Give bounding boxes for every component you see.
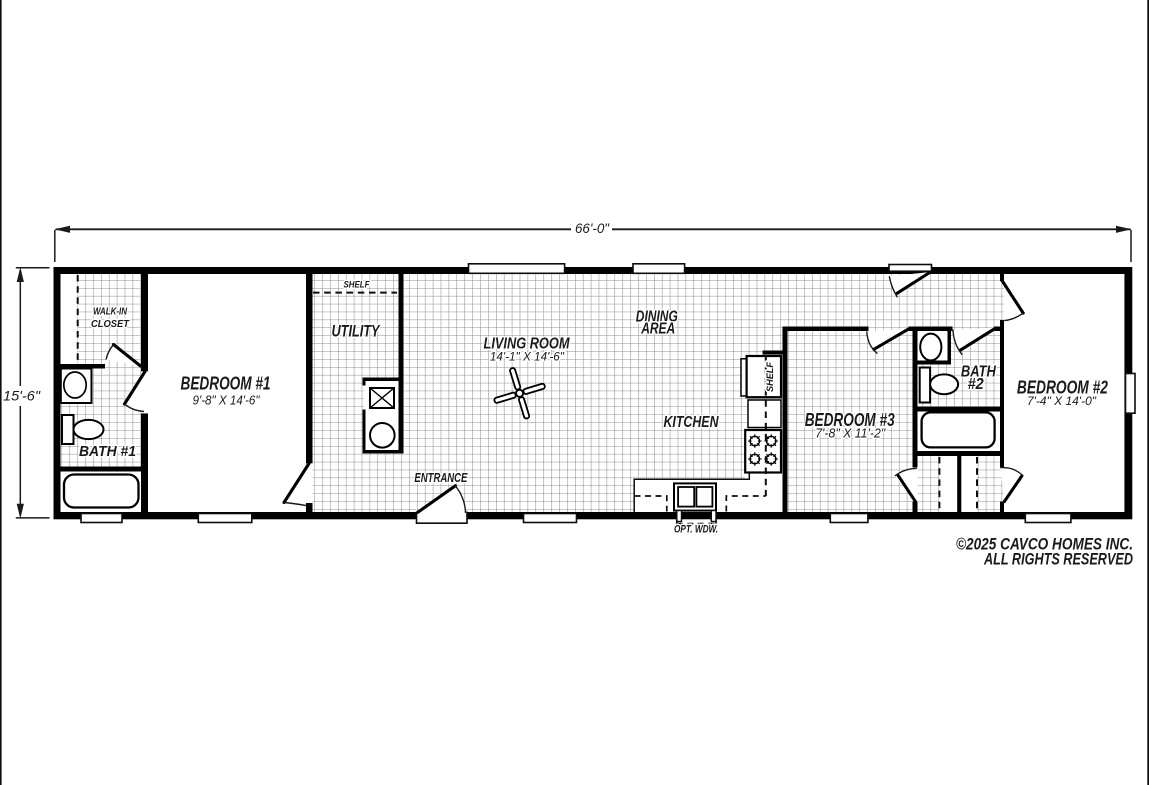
svg-text:ENTRANCE: ENTRANCE bbox=[414, 470, 467, 485]
svg-text:BATH #1: BATH #1 bbox=[79, 444, 136, 460]
svg-text:UTILITY: UTILITY bbox=[332, 322, 381, 341]
svg-text:OPT. WDW.: OPT. WDW. bbox=[674, 524, 718, 536]
svg-text:SHELF: SHELF bbox=[765, 361, 775, 392]
svg-text:66'-0": 66'-0" bbox=[575, 221, 610, 236]
svg-text:7'-4" X 14'-0": 7'-4" X 14'-0" bbox=[1027, 396, 1097, 408]
svg-text:7'-8" X 11'-2": 7'-8" X 11'-2" bbox=[815, 427, 886, 441]
svg-text:WALK-IN: WALK-IN bbox=[93, 306, 127, 318]
svg-text:KITCHEN: KITCHEN bbox=[664, 414, 719, 431]
svg-text:BEDROOM #1: BEDROOM #1 bbox=[181, 374, 271, 394]
svg-text:ALL RIGHTS RESERVED: ALL RIGHTS RESERVED bbox=[983, 551, 1133, 569]
svg-text:BEDROOM #2: BEDROOM #2 bbox=[1017, 378, 1108, 398]
svg-text:9'-8" X 14'-6": 9'-8" X 14'-6" bbox=[193, 394, 261, 408]
svg-text:SHELF: SHELF bbox=[344, 280, 370, 291]
svg-text:CLOSET: CLOSET bbox=[91, 318, 130, 330]
svg-text:14'-1" X 14'-6": 14'-1" X 14'-6" bbox=[490, 350, 565, 364]
svg-text:AREA: AREA bbox=[640, 321, 675, 338]
svg-text:#2: #2 bbox=[968, 376, 984, 393]
svg-text:15'-6": 15'-6" bbox=[3, 389, 41, 404]
